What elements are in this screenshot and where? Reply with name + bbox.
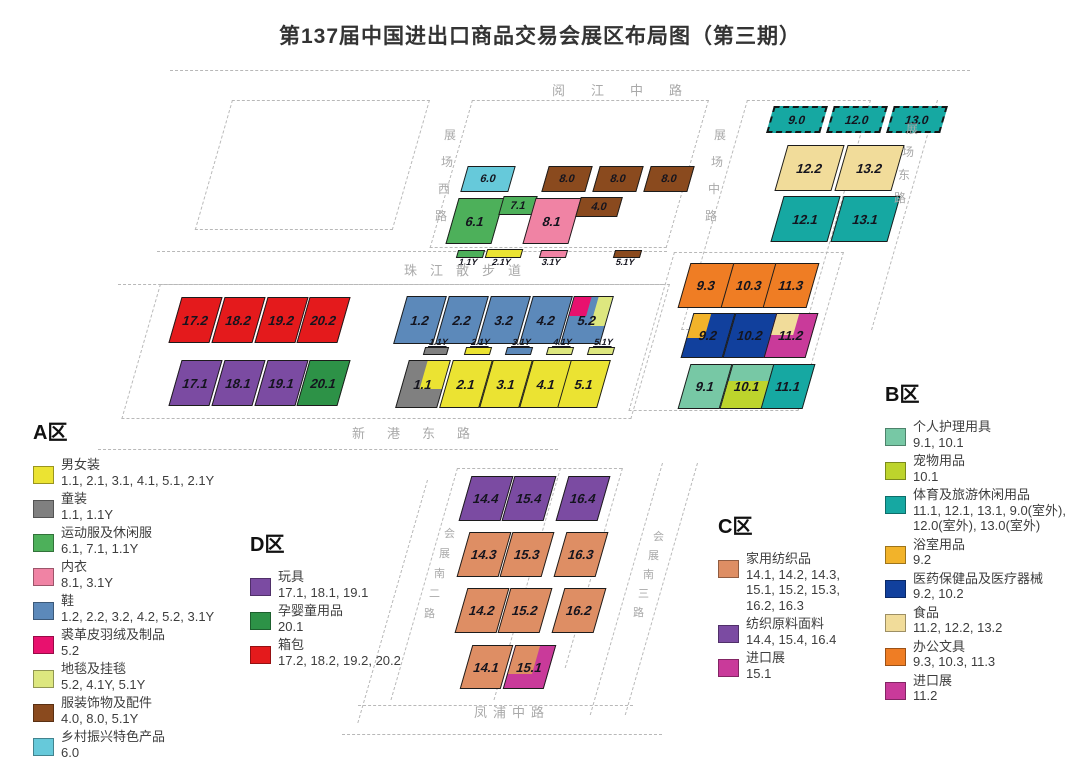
legend-hall-codes: 9.3, 10.3, 11.3 bbox=[913, 654, 995, 670]
legend-category-name: 乡村振兴特色产品 bbox=[61, 729, 165, 745]
road-label-char: 西 bbox=[438, 180, 450, 197]
hall-label: 1.1Y bbox=[428, 337, 449, 347]
road-label-char: 会 bbox=[444, 525, 455, 541]
legend-item: 童装1.1, 1.1Y bbox=[33, 491, 238, 522]
road-label-char: 场 bbox=[902, 143, 914, 160]
legend-swatch bbox=[718, 625, 739, 643]
legend-category-name: 服装饰物及配件 bbox=[61, 695, 152, 711]
legend-hall-codes: 4.0, 8.0, 5.1Y bbox=[61, 711, 152, 727]
hall-6.1: 6.1 bbox=[445, 198, 504, 244]
legend-item: 服装饰物及配件4.0, 8.0, 5.1Y bbox=[33, 695, 238, 726]
legend-hall-codes: 15.1 bbox=[746, 666, 785, 682]
hall-label: 4.1 bbox=[535, 377, 557, 392]
hall-label: 6.0 bbox=[479, 173, 498, 185]
hall-label: 5.1 bbox=[573, 377, 595, 392]
legend-hall-codes: 11.2 bbox=[913, 688, 952, 704]
hall-label: 17.1 bbox=[181, 376, 211, 391]
hall-12.2: 12.2 bbox=[774, 145, 844, 191]
hall-label: 3.1Y bbox=[511, 337, 532, 347]
legend-swatch bbox=[33, 534, 54, 552]
legend-item: 家用纺织品14.1, 14.2, 14.3, 15.1, 15.2, 15.3,… bbox=[718, 551, 868, 613]
legend-swatch bbox=[885, 648, 906, 666]
hall-label: 9.3 bbox=[695, 278, 717, 293]
legend-hall-codes: 14.1, 14.2, 14.3, 15.1, 15.2, 15.3, 16.2… bbox=[746, 567, 868, 614]
legend-item: 裘革皮羽绒及制品5.2 bbox=[33, 627, 238, 658]
legend-category-name: 进口展 bbox=[746, 650, 785, 666]
road-label-char: 展 bbox=[648, 547, 659, 563]
hall-label: 12.0 bbox=[843, 113, 870, 127]
legend-category-name: 医药保健品及医疗器械 bbox=[913, 571, 1043, 587]
hall-label: 14.1 bbox=[472, 660, 502, 675]
road-label-char: 路 bbox=[435, 207, 447, 224]
hall-label: 18.1 bbox=[224, 376, 254, 391]
hall-label: 2.1 bbox=[455, 377, 477, 392]
legend-hall-codes: 1.1, 2.1, 3.1, 4.1, 5.1, 2.1Y bbox=[61, 473, 214, 489]
hall-label: 16.4 bbox=[568, 491, 598, 506]
hall-label: 16.3 bbox=[566, 547, 596, 562]
legend-item: 进口展15.1 bbox=[718, 650, 868, 681]
legend-hall-codes: 1.2, 2.2, 3.2, 4.2, 5.2, 3.1Y bbox=[61, 609, 214, 625]
hall-label: 9.0 bbox=[787, 113, 808, 127]
hall-label: 8.0 bbox=[660, 173, 679, 185]
road-label-char: 展 bbox=[906, 120, 918, 137]
legend-hall-codes: 9.2, 10.2 bbox=[913, 586, 1043, 602]
legend-zone-title: A区 bbox=[33, 416, 238, 445]
hall-label: 8.0 bbox=[609, 173, 628, 185]
legend-swatch bbox=[885, 496, 906, 514]
legend-hall-codes: 9.2 bbox=[913, 552, 965, 568]
hall-label: 14.2 bbox=[467, 603, 497, 618]
hall-label: 10.1 bbox=[732, 379, 762, 394]
legend-category-name: 箱包 bbox=[278, 637, 401, 653]
legend-category-name: 地毯及挂毯 bbox=[61, 661, 145, 677]
hall-label: 1.2 bbox=[409, 313, 431, 328]
legend-category-name: 玩具 bbox=[278, 569, 368, 585]
legend-swatch bbox=[885, 580, 906, 598]
legend-item: 医药保健品及医疗器械9.2, 10.2 bbox=[885, 571, 1070, 602]
legend-category-name: 鞋 bbox=[61, 593, 214, 609]
hall-16.2: 16.2 bbox=[552, 588, 607, 633]
hall-label: 16.2 bbox=[564, 603, 594, 618]
legend-category-name: 纺织原料面料 bbox=[746, 616, 836, 632]
legend-item: 纺织原料面料14.4, 15.4, 16.4 bbox=[718, 616, 868, 647]
legend-category-name: 食品 bbox=[913, 605, 1002, 621]
hall-3.1Y: 3.1Y bbox=[505, 347, 533, 355]
hall-label: 18.2 bbox=[224, 313, 254, 328]
hall-label: 13.1 bbox=[851, 212, 881, 227]
legend-swatch bbox=[33, 466, 54, 484]
legend-swatch bbox=[718, 560, 739, 578]
legend-swatch bbox=[885, 614, 906, 632]
hall-5.1Y: 5.1Y bbox=[587, 347, 615, 355]
legend-swatch bbox=[250, 578, 271, 596]
legend-swatch bbox=[250, 646, 271, 664]
legend-hall-codes: 9.1, 10.1 bbox=[913, 435, 991, 451]
hall-label: 15.3 bbox=[512, 547, 542, 562]
hall-label: 4.1Y bbox=[552, 337, 573, 347]
legend-category-name: 裘革皮羽绒及制品 bbox=[61, 627, 165, 643]
hall-label: 10.2 bbox=[735, 328, 765, 343]
hall-label: 12.2 bbox=[795, 161, 825, 176]
legend-item: 运动服及休闲服6.1, 7.1, 1.1Y bbox=[33, 525, 238, 556]
road-label: 新港东路 bbox=[352, 423, 492, 442]
legend-category-name: 进口展 bbox=[913, 673, 952, 689]
legend-category-name: 个人护理用具 bbox=[913, 419, 991, 435]
legend-category-name: 男女装 bbox=[61, 457, 214, 473]
hall-label: 11.2 bbox=[777, 328, 806, 343]
hall-8.0: 8.0 bbox=[541, 166, 592, 192]
road-label: 珠江散步道 bbox=[404, 260, 534, 279]
legend-category-name: 运动服及休闲服 bbox=[61, 525, 152, 541]
legend-item: 体育及旅游休闲用品11.1, 12.1, 13.1, 9.0(室外), 12.0… bbox=[885, 487, 1070, 534]
legend-zone-D: D区玩具17.1, 18.1, 19.1孕婴童用品20.1箱包17.2, 18.… bbox=[250, 528, 415, 671]
hall-4.1Y: 4.1Y bbox=[546, 347, 574, 355]
hall-label: 19.2 bbox=[267, 313, 297, 328]
legend-swatch bbox=[33, 738, 54, 756]
legend-category-name: 体育及旅游休闲用品 bbox=[913, 487, 1070, 503]
road-label-char: 路 bbox=[633, 604, 644, 620]
hall-2.1Y: 2.1Y bbox=[464, 347, 492, 355]
road-label-char: 会 bbox=[653, 528, 664, 544]
hall-12.0: 12.0 bbox=[826, 106, 888, 133]
hall-16.4: 16.4 bbox=[556, 476, 611, 521]
hall-label: 3.1 bbox=[495, 377, 517, 392]
legend-swatch bbox=[718, 659, 739, 677]
hall-label: 8.1 bbox=[541, 214, 563, 229]
hall-label: 2.2 bbox=[451, 313, 473, 328]
legend-item: 浴室用品9.2 bbox=[885, 537, 1070, 568]
hall-6.0: 6.0 bbox=[460, 166, 515, 192]
legend-hall-codes: 14.4, 15.4, 16.4 bbox=[746, 632, 836, 648]
hall-label: 9.2 bbox=[697, 328, 719, 343]
legend-swatch bbox=[33, 670, 54, 688]
legend-item: 个人护理用具9.1, 10.1 bbox=[885, 419, 1070, 450]
legend-zone-C: C区家用纺织品14.1, 14.2, 14.3, 15.1, 15.2, 15.… bbox=[718, 510, 868, 684]
legend-zone-B: B区个人护理用具9.1, 10.1宠物用品10.1体育及旅游休闲用品11.1, … bbox=[885, 378, 1070, 707]
road-label-char: 二 bbox=[429, 585, 440, 601]
legend-hall-codes: 5.2, 4.1Y, 5.1Y bbox=[61, 677, 145, 693]
legend-swatch bbox=[885, 682, 906, 700]
legend-swatch bbox=[33, 500, 54, 518]
legend-category-name: 宠物用品 bbox=[913, 453, 965, 469]
legend-hall-codes: 11.1, 12.1, 13.1, 9.0(室外), 12.0(室外), 13.… bbox=[913, 503, 1070, 534]
legend-hall-codes: 20.1 bbox=[278, 619, 343, 635]
legend-hall-codes: 10.1 bbox=[913, 469, 965, 485]
road-label-char: 展 bbox=[444, 126, 456, 143]
legend-zone-A: A区男女装1.1, 2.1, 3.1, 4.1, 5.1, 2.1Y童装1.1,… bbox=[33, 416, 238, 761]
legend-zone-title: D区 bbox=[250, 528, 415, 557]
legend-swatch bbox=[885, 546, 906, 564]
legend-item: 内衣8.1, 3.1Y bbox=[33, 559, 238, 590]
legend-item: 办公文具9.3, 10.3, 11.3 bbox=[885, 639, 1070, 670]
legend-item: 食品11.2, 12.2, 13.2 bbox=[885, 605, 1070, 636]
hall-label: 14.4 bbox=[471, 491, 501, 506]
legend-hall-codes: 6.0 bbox=[61, 745, 165, 761]
legend-category-name: 内衣 bbox=[61, 559, 113, 575]
hall-label: 11.3 bbox=[777, 278, 806, 293]
legend-hall-codes: 11.2, 12.2, 13.2 bbox=[913, 620, 1002, 636]
hall-label: 20.2 bbox=[309, 313, 339, 328]
legend-item: 箱包17.2, 18.2, 19.2, 20.2 bbox=[250, 637, 415, 668]
road-label-char: 南 bbox=[643, 566, 654, 582]
legend-hall-codes: 1.1, 1.1Y bbox=[61, 507, 113, 523]
hall-label: 20.1 bbox=[309, 376, 339, 391]
legend-item: 乡村振兴特色产品6.0 bbox=[33, 729, 238, 760]
hall-label: 13.2 bbox=[855, 161, 885, 176]
legend-swatch bbox=[33, 602, 54, 620]
road-label-char: 场 bbox=[711, 153, 723, 170]
hall-label: 11.1 bbox=[774, 379, 803, 394]
hall-label: 12.1 bbox=[791, 212, 821, 227]
legend-hall-codes: 17.1, 18.1, 19.1 bbox=[278, 585, 368, 601]
hall-label: 15.1 bbox=[515, 660, 545, 675]
legend-swatch bbox=[33, 636, 54, 654]
legend-item: 玩具17.1, 18.1, 19.1 bbox=[250, 569, 415, 600]
hall-label: 3.1Y bbox=[541, 257, 562, 267]
road-label: 阅江中路 bbox=[552, 80, 708, 99]
hall-2.1Y: 2.1Y bbox=[485, 249, 524, 258]
hall-label: 15.4 bbox=[514, 491, 544, 506]
legend-item: 地毯及挂毯5.2, 4.1Y, 5.1Y bbox=[33, 661, 238, 692]
legend-hall-codes: 17.2, 18.2, 19.2, 20.2 bbox=[278, 653, 401, 669]
road-label-char: 展 bbox=[439, 545, 450, 561]
hall-label: 3.2 bbox=[493, 313, 515, 328]
hall-3.1Y: 3.1Y bbox=[539, 250, 568, 258]
canton-fair-layout-map: 第137届中国进出口商品交易会展区布局图（第三期） 9.012.013.012.… bbox=[0, 0, 1080, 761]
legend-item: 宠物用品10.1 bbox=[885, 453, 1070, 484]
legend-category-name: 办公文具 bbox=[913, 639, 995, 655]
legend-item: 进口展11.2 bbox=[885, 673, 1070, 704]
road-label-char: 路 bbox=[424, 605, 435, 621]
road-label-char: 展 bbox=[714, 126, 726, 143]
hall-label: 9.1 bbox=[694, 379, 716, 394]
legend-swatch bbox=[250, 612, 271, 630]
legend-category-name: 浴室用品 bbox=[913, 537, 965, 553]
legend-hall-codes: 8.1, 3.1Y bbox=[61, 575, 113, 591]
hall-13.2: 13.2 bbox=[834, 145, 904, 191]
hall-16.3: 16.3 bbox=[554, 532, 609, 577]
hall-label: 4.2 bbox=[535, 313, 557, 328]
legend-item: 孕婴童用品20.1 bbox=[250, 603, 415, 634]
legend-hall-codes: 6.1, 7.1, 1.1Y bbox=[61, 541, 152, 557]
hall-label: 2.1Y bbox=[470, 337, 491, 347]
road-label-char: 中 bbox=[708, 180, 720, 197]
legend-hall-codes: 5.2 bbox=[61, 643, 165, 659]
legend-category-name: 家用纺织品 bbox=[746, 551, 868, 567]
road-label-char: 东 bbox=[898, 166, 910, 183]
legend-item: 鞋1.2, 2.2, 3.2, 4.2, 5.2, 3.1Y bbox=[33, 593, 238, 624]
legend-swatch bbox=[33, 704, 54, 722]
hall-label: 5.1Y bbox=[615, 257, 636, 267]
hall-5.1Y: 5.1Y bbox=[613, 250, 642, 258]
hall-label: 7.1 bbox=[509, 200, 528, 212]
legend-category-name: 童装 bbox=[61, 491, 113, 507]
hall-label: 14.3 bbox=[469, 547, 499, 562]
road-label-char: 路 bbox=[705, 207, 717, 224]
hall-label: 6.1 bbox=[464, 214, 486, 229]
hall-8.0: 8.0 bbox=[643, 166, 694, 192]
legend-zone-title: C区 bbox=[718, 510, 868, 539]
road-label-char: 三 bbox=[638, 585, 649, 601]
road-label: 凤浦中路 bbox=[474, 702, 550, 721]
hall-1.1Y: 1.1Y bbox=[423, 347, 449, 355]
hall-label: 17.2 bbox=[181, 313, 211, 328]
hall-13.1: 13.1 bbox=[830, 196, 900, 242]
hall-4.0: 4.0 bbox=[575, 197, 623, 217]
legend-category-name: 孕婴童用品 bbox=[278, 603, 343, 619]
hall-9.0: 9.0 bbox=[766, 106, 828, 133]
legend-zone-title: B区 bbox=[885, 378, 1070, 407]
road-label-char: 南 bbox=[434, 565, 445, 581]
legend-swatch bbox=[885, 462, 906, 480]
legend-swatch bbox=[885, 428, 906, 446]
hall-label: 1.1 bbox=[412, 377, 434, 392]
legend-item: 男女装1.1, 2.1, 3.1, 4.1, 5.1, 2.1Y bbox=[33, 457, 238, 488]
legend-swatch bbox=[33, 568, 54, 586]
hall-1.1Y: 1.1Y bbox=[456, 250, 485, 258]
hall-label: 15.2 bbox=[510, 603, 540, 618]
hall-label: 10.3 bbox=[734, 278, 764, 293]
hall-8.0: 8.0 bbox=[592, 166, 643, 192]
hall-label: 8.0 bbox=[558, 173, 577, 185]
hall-label: 5.1Y bbox=[593, 337, 614, 347]
hall-label: 19.1 bbox=[267, 376, 297, 391]
road-label-char: 场 bbox=[441, 153, 453, 170]
hall-12.1: 12.1 bbox=[770, 196, 840, 242]
hall-label: 4.0 bbox=[590, 201, 609, 213]
road-label-char: 路 bbox=[894, 189, 906, 206]
